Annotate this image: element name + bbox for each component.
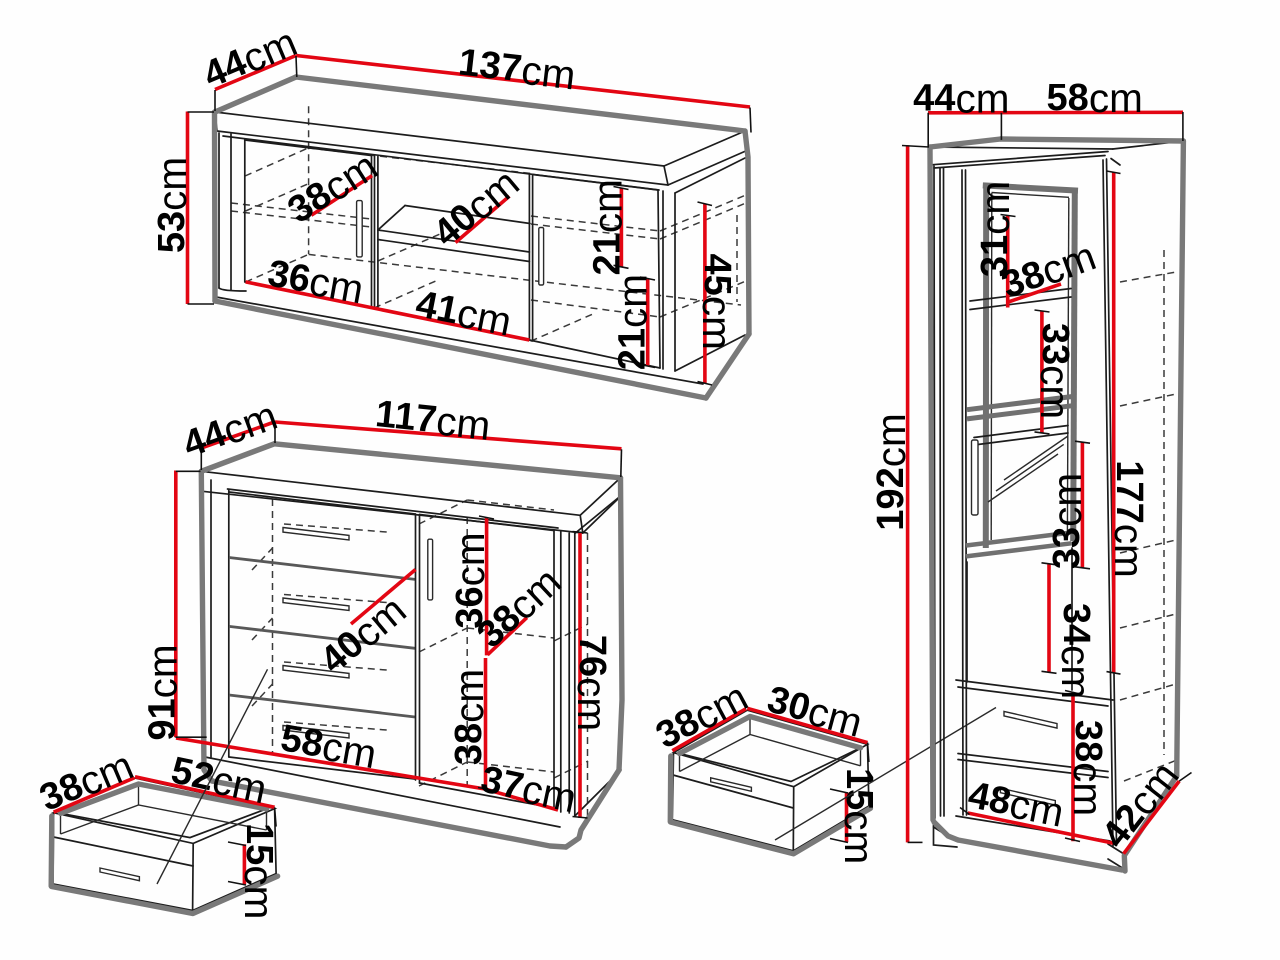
svg-text:177cm: 177cm	[1106, 460, 1152, 577]
svg-text:38cm: 38cm	[446, 669, 492, 765]
svg-text:33cm: 33cm	[1044, 473, 1090, 569]
svg-text:45cm: 45cm	[694, 254, 740, 350]
svg-text:44cm: 44cm	[913, 76, 1009, 122]
svg-text:91cm: 91cm	[140, 644, 186, 740]
svg-text:38cm: 38cm	[1065, 720, 1111, 816]
svg-text:76cm: 76cm	[569, 635, 615, 731]
svg-text:53cm: 53cm	[149, 157, 195, 253]
svg-text:34cm: 34cm	[1053, 603, 1099, 699]
svg-text:15cm: 15cm	[236, 823, 282, 919]
svg-text:21cm: 21cm	[585, 179, 631, 275]
svg-text:192cm: 192cm	[868, 413, 914, 530]
svg-text:15cm: 15cm	[836, 768, 882, 864]
svg-text:58cm: 58cm	[1047, 75, 1143, 121]
svg-text:21cm: 21cm	[610, 274, 656, 370]
svg-text:33cm: 33cm	[1032, 323, 1078, 419]
